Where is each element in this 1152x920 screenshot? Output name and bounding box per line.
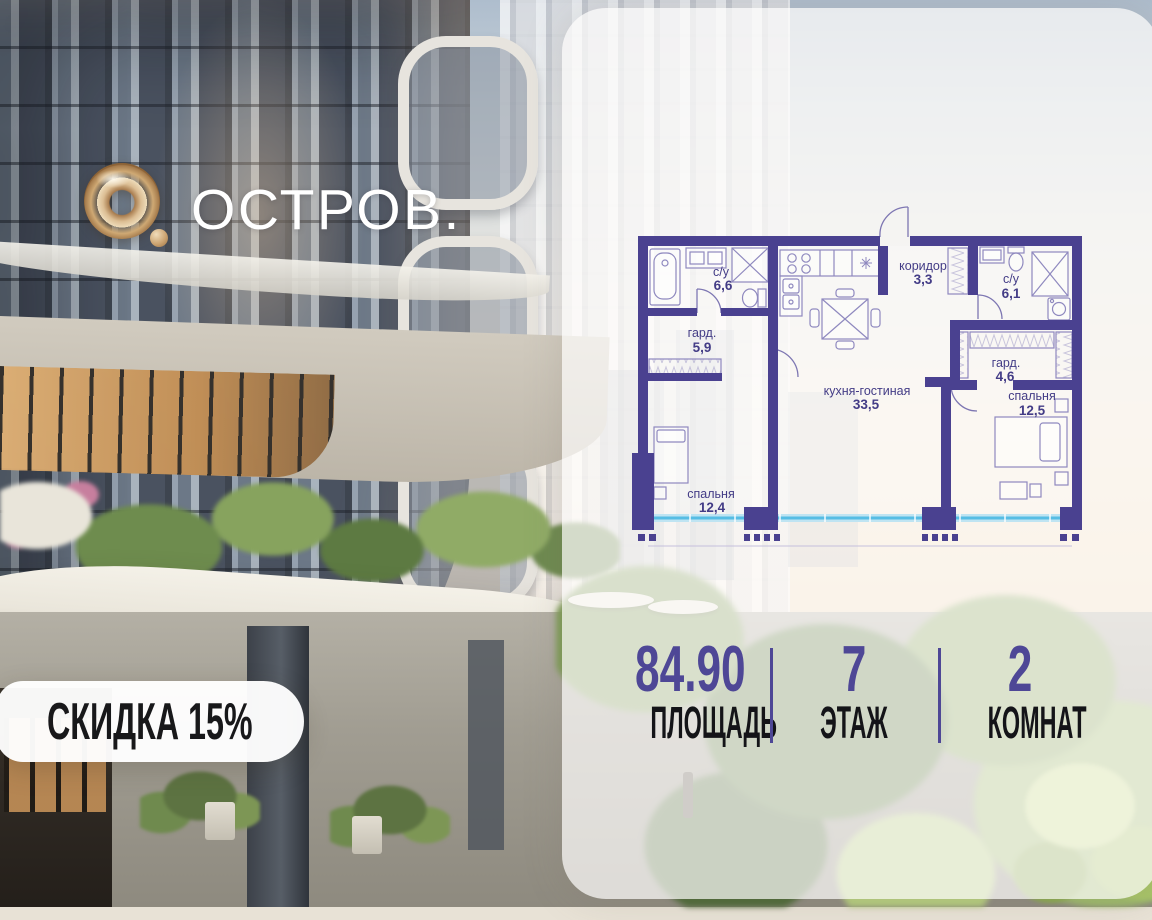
room-area: 12,4 [699,500,726,515]
white-planter-pot [352,816,382,854]
room-name: спальня [687,487,734,501]
dimension-lines [648,546,1072,555]
room-name: гард. [688,326,717,340]
planter-bushes [330,780,450,855]
room-area: 33,5 [853,397,880,412]
room-name: коридор [899,259,947,273]
room-name: с/у [1003,272,1020,286]
room-area: 12,5 [1019,403,1046,418]
floor-plan: с/у 6,6 гард. 5,9 коридор 3,3 с/у 6,1 га… [630,205,1090,555]
room-name: с/у [713,265,730,279]
stat-area-label: ПЛОЩАДЬ [650,702,777,744]
stat-rooms-value: 2 [1008,638,1033,700]
room-name: гард. [992,356,1021,370]
stat-rooms-label: КОМНАТ [988,702,1087,744]
room-area: 4,6 [996,369,1015,384]
room-area: 5,9 [693,340,712,355]
dark-column [468,640,504,850]
room-name: кухня-гостиная [824,384,911,398]
room-area: 3,3 [914,272,933,287]
white-planter-pot [205,802,235,840]
logo-gold-ring-icon [84,163,160,239]
planter-bushes [140,766,260,841]
room-area: 6,6 [714,278,733,293]
info-panel: с/у 6,6 гард. 5,9 коридор 3,3 с/у 6,1 га… [562,8,1152,899]
stat-area: 84.90 ПЛОЩАДЬ [592,638,788,744]
stat-rooms: 2 КОМНАТ [942,638,1098,744]
room-area: 6,1 [1002,286,1021,301]
room-name: спальня [1008,389,1055,403]
logo-gold-dot-icon [150,229,168,247]
window-band [648,514,1072,522]
stat-floor-value: 7 [842,638,867,700]
brand-name: ОСТРОВ. [191,182,462,239]
stat-floor: 7 ЭТАЖ [774,638,934,744]
stat-area-value: 84.90 [635,638,746,700]
stat-floor-label: ЭТАЖ [820,702,888,744]
stat-divider [770,648,773,743]
logo-ring-highlight [96,170,130,188]
discount-badge: СКИДКА 15% [0,681,304,762]
discount-badge-label: СКИДКА 15% [47,692,253,752]
stat-divider [938,648,941,743]
